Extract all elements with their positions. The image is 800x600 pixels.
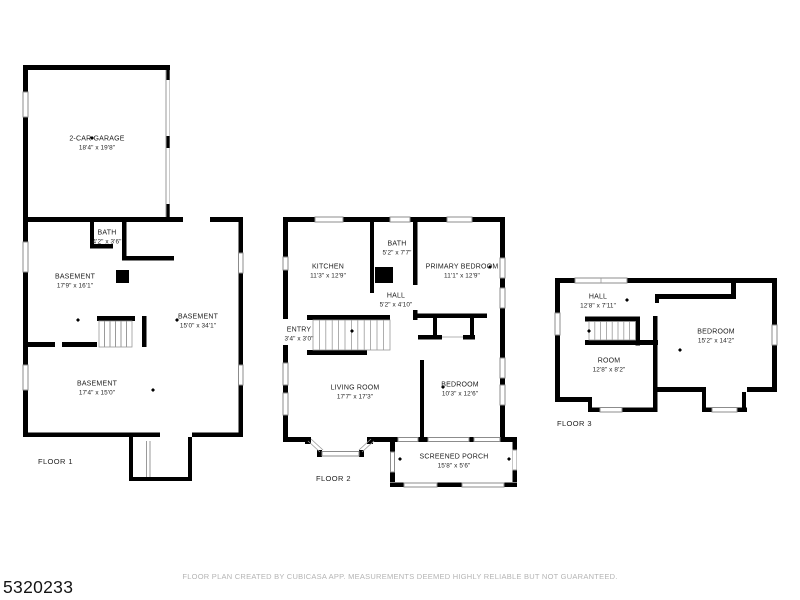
disclaimer-text: FLOOR PLAN CREATED BY CUBICASA APP. MEAS… (182, 572, 617, 581)
floor-2-thin-lines (308, 320, 463, 452)
listing-id: 5320233 (3, 577, 73, 598)
floor-1-camera-dots (76, 136, 178, 391)
floorplan-page: { "page": { "listing_id": "5320233", "di… (0, 0, 800, 600)
floor-3-walls (555, 278, 777, 412)
floor-1-thin-lines (99, 70, 169, 477)
floor-1-windows (23, 92, 243, 390)
floor-2-walls (283, 217, 517, 487)
floor-3-thin-lines (589, 278, 636, 340)
floor-2-camera-dots (350, 265, 510, 460)
floor-1-label: FLOOR 1 (38, 457, 73, 466)
floor-3-label: FLOOR 3 (557, 419, 592, 428)
floor-1-walls (23, 65, 243, 481)
floorplan-drawing (0, 0, 800, 600)
floor-2-label: FLOOR 2 (316, 474, 351, 483)
